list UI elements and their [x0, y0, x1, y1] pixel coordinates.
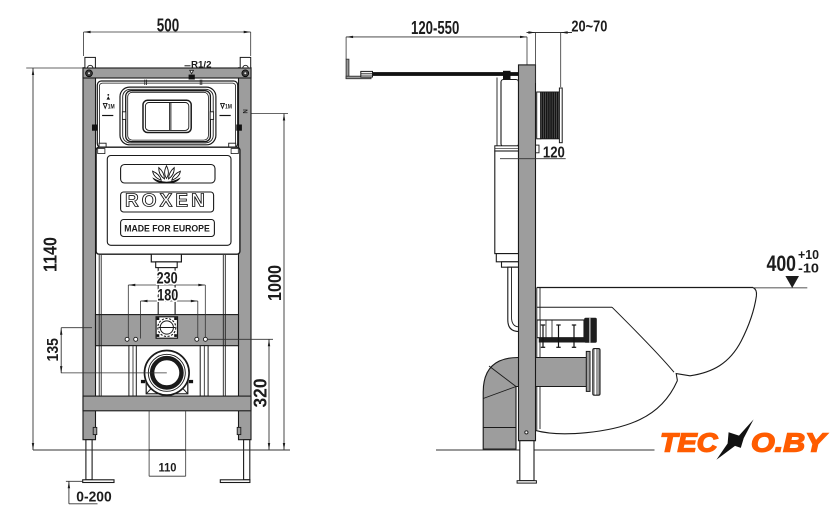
svg-text:110: 110 — [159, 460, 177, 474]
svg-text:1000: 1000 — [265, 265, 285, 301]
svg-text:-10: -10 — [798, 262, 819, 276]
svg-text:180: 180 — [157, 285, 178, 304]
svg-text:N: N — [244, 109, 250, 113]
svg-text:TEC: TEC — [660, 427, 719, 457]
svg-text:400: 400 — [767, 251, 797, 276]
svg-text:0-200: 0-200 — [76, 489, 111, 506]
svg-text:ROXEN: ROXEN — [125, 189, 208, 210]
svg-text:O.BY: O.BY — [751, 427, 829, 457]
svg-text:1140: 1140 — [41, 237, 61, 272]
svg-text:1M: 1M — [108, 104, 115, 111]
svg-text:120-550: 120-550 — [411, 18, 459, 38]
svg-text:R1/2: R1/2 — [191, 59, 212, 69]
svg-text:20~70: 20~70 — [571, 19, 607, 36]
svg-text:135: 135 — [45, 338, 62, 362]
svg-text:MADE FOR EUROPE: MADE FOR EUROPE — [124, 224, 210, 234]
svg-text:500: 500 — [157, 15, 179, 35]
svg-text:320: 320 — [250, 379, 270, 408]
svg-text:1M: 1M — [225, 104, 232, 111]
svg-text:+10: +10 — [798, 248, 819, 262]
